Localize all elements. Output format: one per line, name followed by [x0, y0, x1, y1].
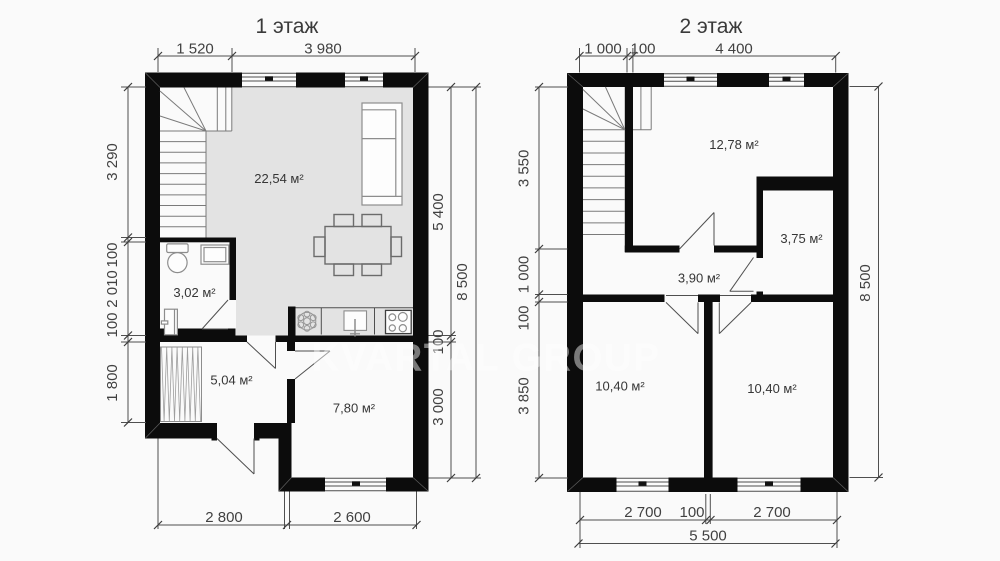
- svg-text:5 400: 5 400: [430, 193, 447, 231]
- svg-text:KVARTAL GROUP: KVARTAL GROUP: [312, 337, 661, 380]
- svg-text:5,04 м²: 5,04 м²: [210, 373, 253, 388]
- svg-text:2 010: 2 010: [104, 270, 121, 308]
- svg-text:2 этаж: 2 этаж: [680, 15, 743, 38]
- svg-text:3 290: 3 290: [104, 143, 121, 181]
- svg-text:3 550: 3 550: [516, 150, 533, 188]
- svg-text:1 520: 1 520: [176, 41, 214, 58]
- svg-text:100: 100: [630, 41, 655, 58]
- svg-text:100: 100: [516, 305, 533, 330]
- svg-text:3,75 м²: 3,75 м²: [780, 231, 823, 246]
- svg-text:4 400: 4 400: [715, 41, 753, 58]
- svg-text:10,40 м²: 10,40 м²: [747, 381, 797, 396]
- svg-text:1 000: 1 000: [516, 256, 533, 294]
- svg-text:1 000: 1 000: [584, 41, 622, 58]
- svg-text:22,54 м²: 22,54 м²: [254, 171, 304, 186]
- svg-text:2 700: 2 700: [753, 504, 791, 521]
- svg-text:5 500: 5 500: [689, 528, 727, 545]
- svg-text:3,90 м²: 3,90 м²: [678, 271, 721, 286]
- svg-text:100: 100: [679, 504, 704, 521]
- svg-text:3 980: 3 980: [304, 41, 342, 58]
- svg-text:2 800: 2 800: [205, 509, 243, 526]
- svg-text:10,40 м²: 10,40 м²: [595, 379, 645, 394]
- svg-text:1 800: 1 800: [104, 364, 121, 402]
- svg-text:3 850: 3 850: [516, 377, 533, 415]
- svg-text:2 700: 2 700: [624, 504, 662, 521]
- svg-text:100: 100: [104, 242, 121, 267]
- svg-text:3 000: 3 000: [430, 388, 447, 426]
- svg-text:3,02 м²: 3,02 м²: [173, 285, 216, 300]
- svg-text:7,80 м²: 7,80 м²: [333, 401, 376, 416]
- svg-text:2 600: 2 600: [333, 509, 371, 526]
- svg-text:1 этаж: 1 этаж: [256, 15, 319, 38]
- svg-text:12,78 м²: 12,78 м²: [709, 137, 759, 152]
- svg-text:100: 100: [104, 312, 121, 337]
- svg-text:8 500: 8 500: [857, 264, 874, 302]
- svg-text:8 500: 8 500: [454, 263, 471, 301]
